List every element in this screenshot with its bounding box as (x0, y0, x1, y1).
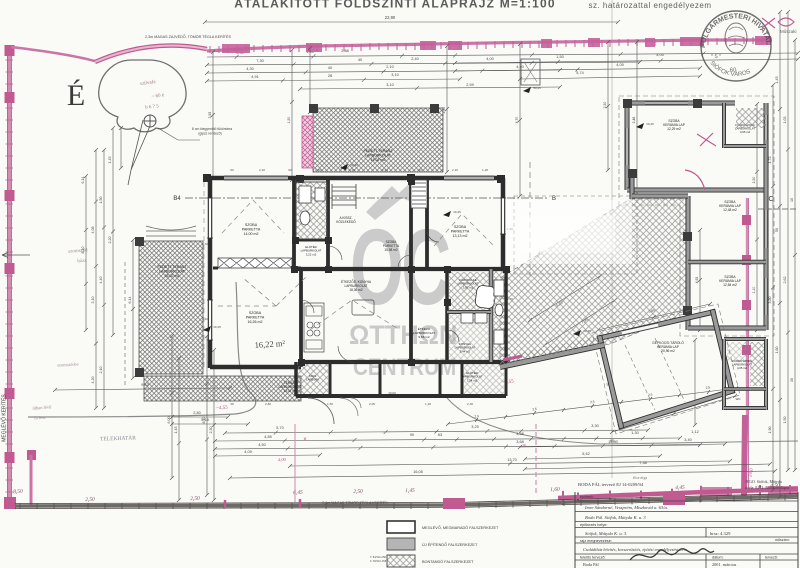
svg-text:2,0m MAGAS TÖMÖR TÉGLA KERÍTÉS: 2,0m MAGAS TÖMÖR TÉGLA KERÍTÉS (322, 500, 388, 505)
svg-text:(gipsz rendező): (gipsz rendező) (198, 132, 221, 136)
svg-text:MEGLÉVŐ, MEGMARADÓ FALSZERKEZE: MEGLÉVŐ, MEGMARADÓ FALSZERKEZET (422, 525, 499, 530)
svg-text:ΩΤΤΗΩΝ: ΩΤΤΗΩΝ (349, 319, 457, 350)
svg-text:építtető:: építtető: (580, 495, 594, 499)
svg-text:1,50: 1,50 (99, 197, 103, 204)
svg-text:~4,55: ~4,55 (216, 406, 228, 412)
svg-text:SZOBA: SZOBA (249, 311, 262, 315)
svg-text:3,25: 3,25 (471, 425, 478, 429)
svg-text:4,05 m2: 4,05 m2 (737, 366, 748, 370)
svg-text:3,30: 3,30 (591, 424, 598, 428)
svg-text:WC: WC (736, 397, 742, 401)
svg-text:3,80: 3,80 (768, 297, 772, 304)
svg-text:12,29 m2: 12,29 m2 (667, 127, 681, 131)
svg-text:±0,45: ±0,45 (646, 122, 654, 126)
svg-text:38: 38 (230, 402, 234, 406)
svg-text:LAPBURKOLAT: LAPBURKOLAT (365, 153, 392, 157)
svg-text:1,60: 1,60 (550, 487, 560, 493)
svg-text:2,30: 2,30 (209, 427, 213, 434)
svg-text:1,12: 1,12 (691, 430, 698, 434)
svg-text:2,62: 2,62 (783, 277, 787, 284)
svg-text:PARKETTA: PARKETTA (242, 227, 261, 231)
svg-text:28: 28 (328, 74, 332, 78)
svg-text:5,74: 5,74 (576, 71, 583, 75)
svg-text:1,50: 1,50 (556, 55, 563, 59)
svg-text:26: 26 (522, 443, 527, 448)
svg-text:2,30: 2,30 (752, 177, 756, 184)
svg-text:3,10: 3,10 (386, 83, 393, 87)
svg-text:1,80: 1,80 (775, 347, 779, 354)
svg-text:6,14: 6,14 (81, 177, 85, 184)
svg-text:Boda Pál: Boda Pál (583, 562, 599, 567)
svg-text:2,05: 2,05 (369, 402, 375, 406)
svg-text:3,93: 3,93 (208, 112, 212, 119)
svg-text:élca-atga: élca-atga (633, 475, 648, 480)
svg-text:16,26 m2: 16,26 m2 (248, 320, 263, 324)
svg-text:2001. március: 2001. március (712, 562, 737, 567)
svg-text:7,30: 7,30 (256, 59, 263, 63)
svg-text:4,05: 4,05 (616, 63, 623, 67)
svg-text:±0,45: ±0,45 (350, 163, 358, 167)
svg-text:1,45: 1,45 (405, 487, 415, 494)
svg-text:90: 90 (288, 168, 292, 172)
svg-text:4,20: 4,20 (91, 377, 95, 384)
svg-text:PARKETTA: PARKETTA (451, 229, 470, 233)
svg-text:1,50: 1,50 (287, 117, 291, 124)
svg-text:felelős tervező:: felelős tervező: (580, 556, 606, 560)
svg-text:4,08: 4,08 (91, 227, 95, 234)
svg-text:MEGLÉVŐ KERÍTÉS: MEGLÉVŐ KERÍTÉS (1, 394, 8, 442)
svg-text:15,98 m2: 15,98 m2 (384, 248, 398, 252)
svg-text:4,50: 4,50 (258, 443, 265, 447)
svg-text:5,70: 5,70 (276, 426, 283, 430)
svg-text:4,00: 4,00 (486, 57, 493, 61)
svg-text:3,95 m2: 3,95 m2 (740, 130, 751, 134)
svg-text:É: É (67, 79, 85, 112)
svg-text:19,02 m2: 19,02 m2 (371, 158, 386, 162)
svg-text:4,45: 4,45 (675, 484, 685, 491)
svg-text:2,40: 2,40 (411, 57, 418, 61)
svg-text:2,59: 2,59 (466, 83, 473, 87)
svg-text:3,97 m2: 3,97 m2 (463, 285, 474, 289)
svg-text:ÚJ ÉPÍTENDŐ FALSZERKEZET: ÚJ ÉPÍTENDŐ FALSZERKEZET (422, 542, 478, 547)
svg-text:2,5: 2,5 (706, 385, 711, 390)
svg-text:SZOBA: SZOBA (454, 225, 467, 229)
svg-text:5,18: 5,18 (201, 418, 208, 422)
svg-text:±0,45: ±0,45 (533, 86, 541, 90)
svg-text:16,08: 16,08 (413, 470, 423, 474)
svg-text:KÖZLEKEDŐ: KÖZLEKEDŐ (336, 219, 356, 224)
svg-text:hrsz: 4.329: hrsz: 4.329 (710, 531, 731, 536)
svg-text:3,22 m2: 3,22 m2 (306, 252, 317, 256)
svg-text:2,3m MAGAS ZAJVÉDŐ, TÖMÖR TÉGL: 2,3m MAGAS ZAJVÉDŐ, TÖMÖR TÉGLA KERÍTÉS (145, 34, 231, 39)
svg-text:5,44 m2: 5,44 m2 (460, 349, 471, 353)
svg-text:22,90: 22,90 (385, 15, 396, 20)
svg-text:4,85: 4,85 (264, 435, 271, 439)
svg-text:LAPBURK.: LAPBURK. (306, 378, 320, 382)
svg-text:5,42: 5,42 (582, 452, 589, 456)
svg-text:iroda: 8171. Balatonvilágos: iroda: 8171. Balatonvilágos (745, 485, 790, 490)
svg-text:1,50: 1,50 (783, 417, 787, 424)
svg-text:4,93: 4,93 (695, 277, 699, 284)
svg-text:12,80: 12,80 (608, 440, 618, 444)
svg-text:±0,45: ±0,45 (453, 210, 461, 214)
svg-text:1,50: 1,50 (327, 402, 333, 406)
svg-text:1,30: 1,30 (631, 431, 638, 435)
svg-text:1,45: 1,45 (775, 77, 779, 84)
svg-text:14,00 m2: 14,00 m2 (244, 232, 259, 236)
svg-text:4,40: 4,40 (99, 277, 103, 284)
svg-text:×: × (303, 437, 307, 443)
svg-text:20,96 m2: 20,96 m2 (661, 349, 675, 353)
svg-text:6,14: 6,14 (128, 297, 132, 304)
svg-text:2,80: 2,80 (193, 411, 200, 415)
svg-text:4,70: 4,70 (515, 117, 519, 124)
svg-text:építkezés helye:: építkezés helye: (580, 523, 607, 527)
svg-text:4,09: 4,09 (244, 450, 251, 454)
svg-text:2,30: 2,30 (467, 402, 473, 406)
svg-text:4,91: 4,91 (251, 75, 258, 79)
svg-text:13,70: 13,70 (507, 458, 517, 462)
svg-text:90: 90 (410, 433, 414, 437)
svg-text:8,10: 8,10 (81, 247, 85, 254)
svg-text:9,58 m2: 9,58 m2 (418, 335, 429, 339)
svg-text:40: 40 (328, 66, 332, 70)
svg-text:ÁTALAKÍTOTT FÖLDSZINTI ALAPR: ÁTALAKÍTOTT FÖLDSZINTI ALAPRAJZ M=1:100 (234, 0, 556, 11)
svg-text:FEDETT TERASZ: FEDETT TERASZ (157, 265, 187, 269)
svg-text:63: 63 (438, 433, 442, 437)
svg-text:40: 40 (358, 58, 362, 62)
svg-text:4,05: 4,05 (656, 53, 663, 57)
svg-text:sz. határozattal engedélyezem: sz. határozattal engedélyezem (588, 1, 711, 10)
svg-text:2,20: 2,20 (108, 237, 112, 244)
svg-text:PARKETTA: PARKETTA (246, 315, 265, 319)
svg-text:12,84 m2: 12,84 m2 (723, 283, 737, 287)
svg-text:C: C (768, 196, 773, 203)
svg-text:10: 10 (790, 198, 794, 202)
svg-text:30: 30 (790, 378, 794, 382)
svg-text:1,03: 1,03 (783, 117, 787, 124)
svg-text:6,00: 6,00 (167, 417, 171, 424)
svg-text:BODA PÁL tervező EJ 14-0209/: BODA PÁL tervező EJ 14-0209/94 (578, 482, 644, 487)
svg-text:50: 50 (775, 228, 779, 232)
svg-text:1,10: 1,10 (752, 287, 756, 294)
svg-text:FEDETT TERASZ: FEDETT TERASZ (363, 149, 393, 153)
svg-text:3,24 m2: 3,24 m2 (467, 378, 478, 382)
svg-text:2,5: 2,5 (590, 400, 595, 405)
svg-text:B4: B4 (173, 196, 181, 202)
svg-text:90: 90 (230, 168, 234, 172)
svg-text:18,36 m2: 18,36 m2 (349, 288, 363, 292)
svg-text:2,5: 2,5 (474, 414, 479, 419)
svg-text:2,5: 2,5 (532, 407, 537, 412)
svg-text:2,10: 2,10 (259, 168, 265, 172)
svg-text:BONTANDÓ FALSZERKEZET: BONTANDÓ FALSZERKEZET (422, 559, 474, 564)
svg-text:műszám:: műszám: (775, 538, 790, 542)
svg-text:8,50: 8,50 (13, 489, 23, 496)
svg-text:T: 84/310-258: T: 84/310-258 (370, 555, 386, 559)
svg-text:3,38: 3,38 (516, 432, 523, 436)
svg-text:1,45: 1,45 (108, 157, 112, 164)
svg-text:3,10: 3,10 (91, 297, 95, 304)
svg-text:2,10: 2,10 (386, 65, 393, 69)
svg-text:8 cm kiegyenlítő tükörsima: 8 cm kiegyenlítő tükörsima (192, 127, 232, 131)
svg-text:2,50: 2,50 (353, 489, 363, 495)
svg-text:3,40: 3,40 (684, 438, 691, 442)
svg-text:2,88: 2,88 (341, 49, 348, 53)
svg-text:2,50: 2,50 (85, 497, 95, 503)
svg-text:1,45: 1,45 (174, 427, 178, 434)
svg-text:SZOBA: SZOBA (245, 223, 258, 227)
svg-text:tervező:: tervező: (765, 556, 778, 560)
svg-text:±0,45: ±0,45 (583, 329, 591, 333)
svg-text:1,72: 1,72 (768, 157, 772, 164)
svg-text:16,02 m2: 16,02 m2 (165, 274, 180, 278)
svg-text:12,48 m2: 12,48 m2 (723, 208, 737, 212)
svg-text:±0,00: ±0,00 (388, 391, 396, 395)
svg-text:1,90: 1,90 (768, 427, 772, 434)
svg-text:±0,45: ±0,45 (213, 325, 221, 329)
svg-text:2,80: 2,80 (265, 402, 271, 406)
svg-text:2,48: 2,48 (632, 117, 636, 124)
svg-text:LAPBURKOLAT: LAPBURKOLAT (159, 269, 186, 273)
svg-text:2,10: 2,10 (452, 168, 458, 172)
svg-text:F: 84/310-258: F: 84/310-258 (370, 559, 387, 563)
svg-text:13,13 m2: 13,13 m2 (453, 234, 468, 238)
svg-text:2,50: 2,50 (190, 496, 200, 502)
svg-text:2,10: 2,10 (99, 367, 103, 374)
svg-text:3,10: 3,10 (391, 73, 398, 77)
svg-text:7,38: 7,38 (639, 461, 646, 465)
svg-text:2,30: 2,30 (603, 102, 607, 109)
svg-text:4,30: 4,30 (246, 67, 253, 71)
svg-text:1,48: 1,48 (425, 402, 431, 406)
svg-text:rajz megnevezése:: rajz megnevezése: (580, 539, 612, 543)
svg-text:fa lesz: fa lesz (34, 415, 46, 421)
svg-text:dátum:: dátum: (712, 556, 724, 560)
svg-text:* S *: * S * (711, 54, 721, 60)
svg-text:1,28: 1,28 (482, 168, 488, 172)
svg-text:60: 60 (730, 68, 737, 74)
